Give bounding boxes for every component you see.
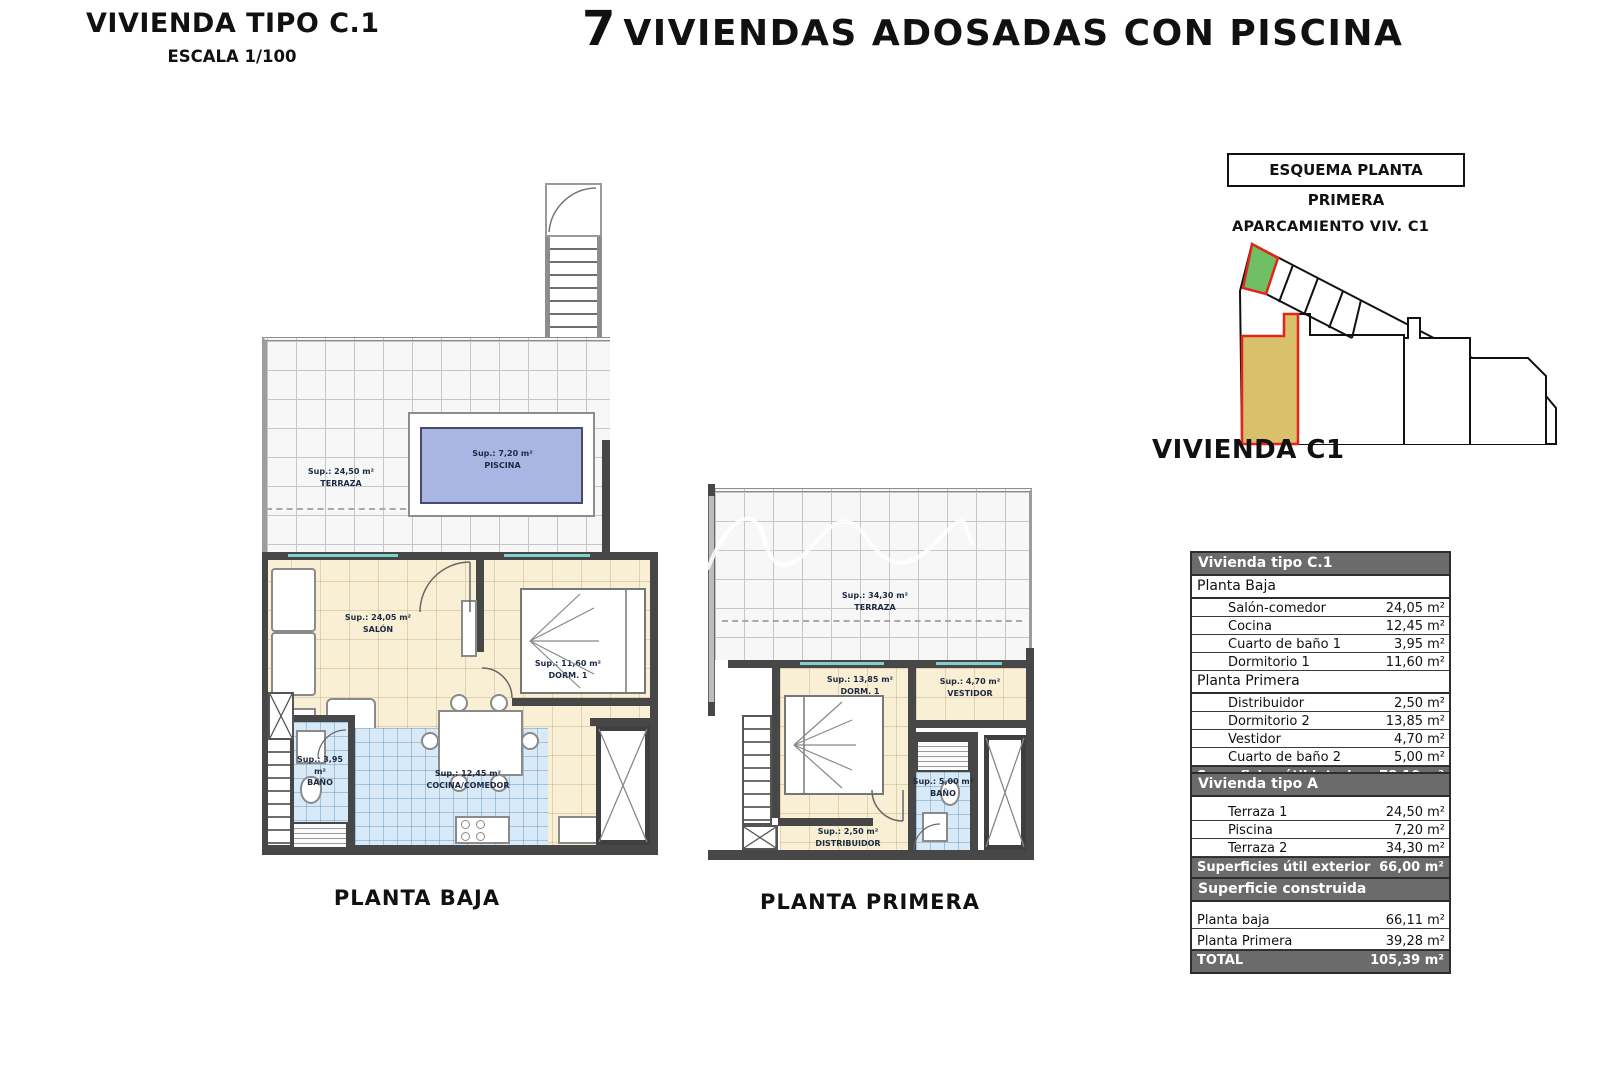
row-label: Cuarto de baño 2: [1228, 750, 1341, 765]
row-value: 39,28 m²: [1386, 934, 1445, 949]
table-row: Distribuidor2,50 m²: [1192, 694, 1449, 712]
row-value: 34,30 m²: [1386, 841, 1445, 856]
plan-primera-overlay: [700, 480, 1040, 865]
table-row: Cocina12,45 m²: [1192, 617, 1449, 635]
row-value: 24,50 m²: [1386, 805, 1445, 820]
plan-sheet: VIVIENDA TIPO C.1 ESCALA 1/100 7 VIVIEND…: [0, 0, 1620, 1080]
table-row: Vestidor4,70 m²: [1192, 730, 1449, 748]
floor-plan-planta-baja: Sup.: 7,20 m² PISCINA Sup.: 24,50 m² TER…: [258, 180, 662, 856]
sheet-title: VIVIENDA TIPO C.1: [86, 8, 380, 39]
caption-planta-primera: PLANTA PRIMERA: [730, 890, 1010, 914]
row-value: 24,05 m²: [1386, 601, 1445, 616]
table-row: Planta baja66,11 m²: [1192, 908, 1449, 929]
project-title-text: VIVIENDAS ADOSADAS CON PISCINA: [623, 13, 1403, 54]
footer-label: Superficies útil exterior: [1197, 860, 1370, 877]
table-superficies-interior: Vivienda tipo C.1 Planta Baja Salón-come…: [1190, 551, 1451, 790]
table-row: Piscina7,20 m²: [1192, 821, 1449, 839]
table-row: Dormitorio 213,85 m²: [1192, 712, 1449, 730]
project-title: 7 VIVIENDAS ADOSADAS CON PISCINA: [582, 0, 1403, 58]
footer-value: 105,39 m²: [1370, 953, 1444, 970]
row-label: Piscina: [1228, 823, 1273, 838]
row-label: Dormitorio 1: [1228, 655, 1310, 670]
table-footer: Superficies útil exterior66,00 m²: [1192, 857, 1449, 879]
site-schematic: [1190, 236, 1590, 451]
row-label: Cuarto de baño 1: [1228, 637, 1341, 652]
table-row: Dormitorio 111,60 m²: [1192, 653, 1449, 671]
row-value: 7,20 m²: [1394, 823, 1445, 838]
row-label: Distribuidor: [1228, 696, 1304, 711]
table-section: Planta Baja: [1192, 576, 1449, 599]
footer-value: 66,00 m²: [1379, 860, 1444, 877]
table-row: Planta Primera39,28 m²: [1192, 929, 1449, 950]
row-label: Salón-comedor: [1228, 601, 1326, 616]
plan-baja-overlay: [258, 180, 662, 856]
table-header: Superficie construida: [1192, 879, 1449, 902]
row-value: 11,60 m²: [1386, 655, 1445, 670]
caption-planta-baja: PLANTA BAJA: [297, 886, 537, 910]
table-row: Cuarto de baño 13,95 m²: [1192, 635, 1449, 653]
esquema-title-box: ESQUEMA PLANTA PRIMERA: [1227, 153, 1465, 187]
vivienda-label: VIVIENDA C1: [1152, 435, 1345, 465]
row-value: 4,70 m²: [1394, 732, 1445, 747]
table-row: Salón-comedor24,05 m²: [1192, 599, 1449, 617]
parking-label: APARCAMIENTO VIV. C1: [1232, 219, 1429, 235]
table-header: Vivienda tipo C.1: [1192, 553, 1449, 576]
row-value: 3,95 m²: [1394, 637, 1445, 652]
footer-label: TOTAL: [1197, 953, 1243, 970]
row-value: 5,00 m²: [1394, 750, 1445, 765]
table-row: Cuarto de baño 25,00 m²: [1192, 748, 1449, 766]
row-label: Cocina: [1228, 619, 1272, 634]
table-superficie-construida: Superficie construida Planta baja66,11 m…: [1190, 877, 1451, 974]
row-value: 13,85 m²: [1386, 714, 1445, 729]
row-value: 12,45 m²: [1386, 619, 1445, 634]
row-label: Terraza 1: [1228, 805, 1287, 820]
row-label: Planta Primera: [1197, 934, 1292, 949]
row-label: Planta baja: [1197, 913, 1270, 928]
table-row: Terraza 124,50 m²: [1192, 803, 1449, 821]
row-label: Terraza 2: [1228, 841, 1287, 856]
floor-plan-planta-primera: Sup.: 34,30 m² TERRAZA Sup.: 13,85 m² DO…: [700, 480, 1040, 865]
table-header: Vivienda tipo A: [1192, 774, 1449, 797]
table-section: Planta Primera: [1192, 671, 1449, 694]
table-row: Terraza 234,30 m²: [1192, 839, 1449, 857]
row-label: Dormitorio 2: [1228, 714, 1310, 729]
table-superficies-exterior: Vivienda tipo A Terraza 124,50 m² Piscin…: [1190, 772, 1451, 881]
project-title-number: 7: [582, 0, 615, 58]
sheet-scale: ESCALA 1/100: [86, 47, 378, 66]
row-value: 2,50 m²: [1394, 696, 1445, 711]
row-value: 66,11 m²: [1386, 913, 1445, 928]
table-footer: TOTAL105,39 m²: [1192, 950, 1449, 972]
row-label: Vestidor: [1228, 732, 1281, 747]
